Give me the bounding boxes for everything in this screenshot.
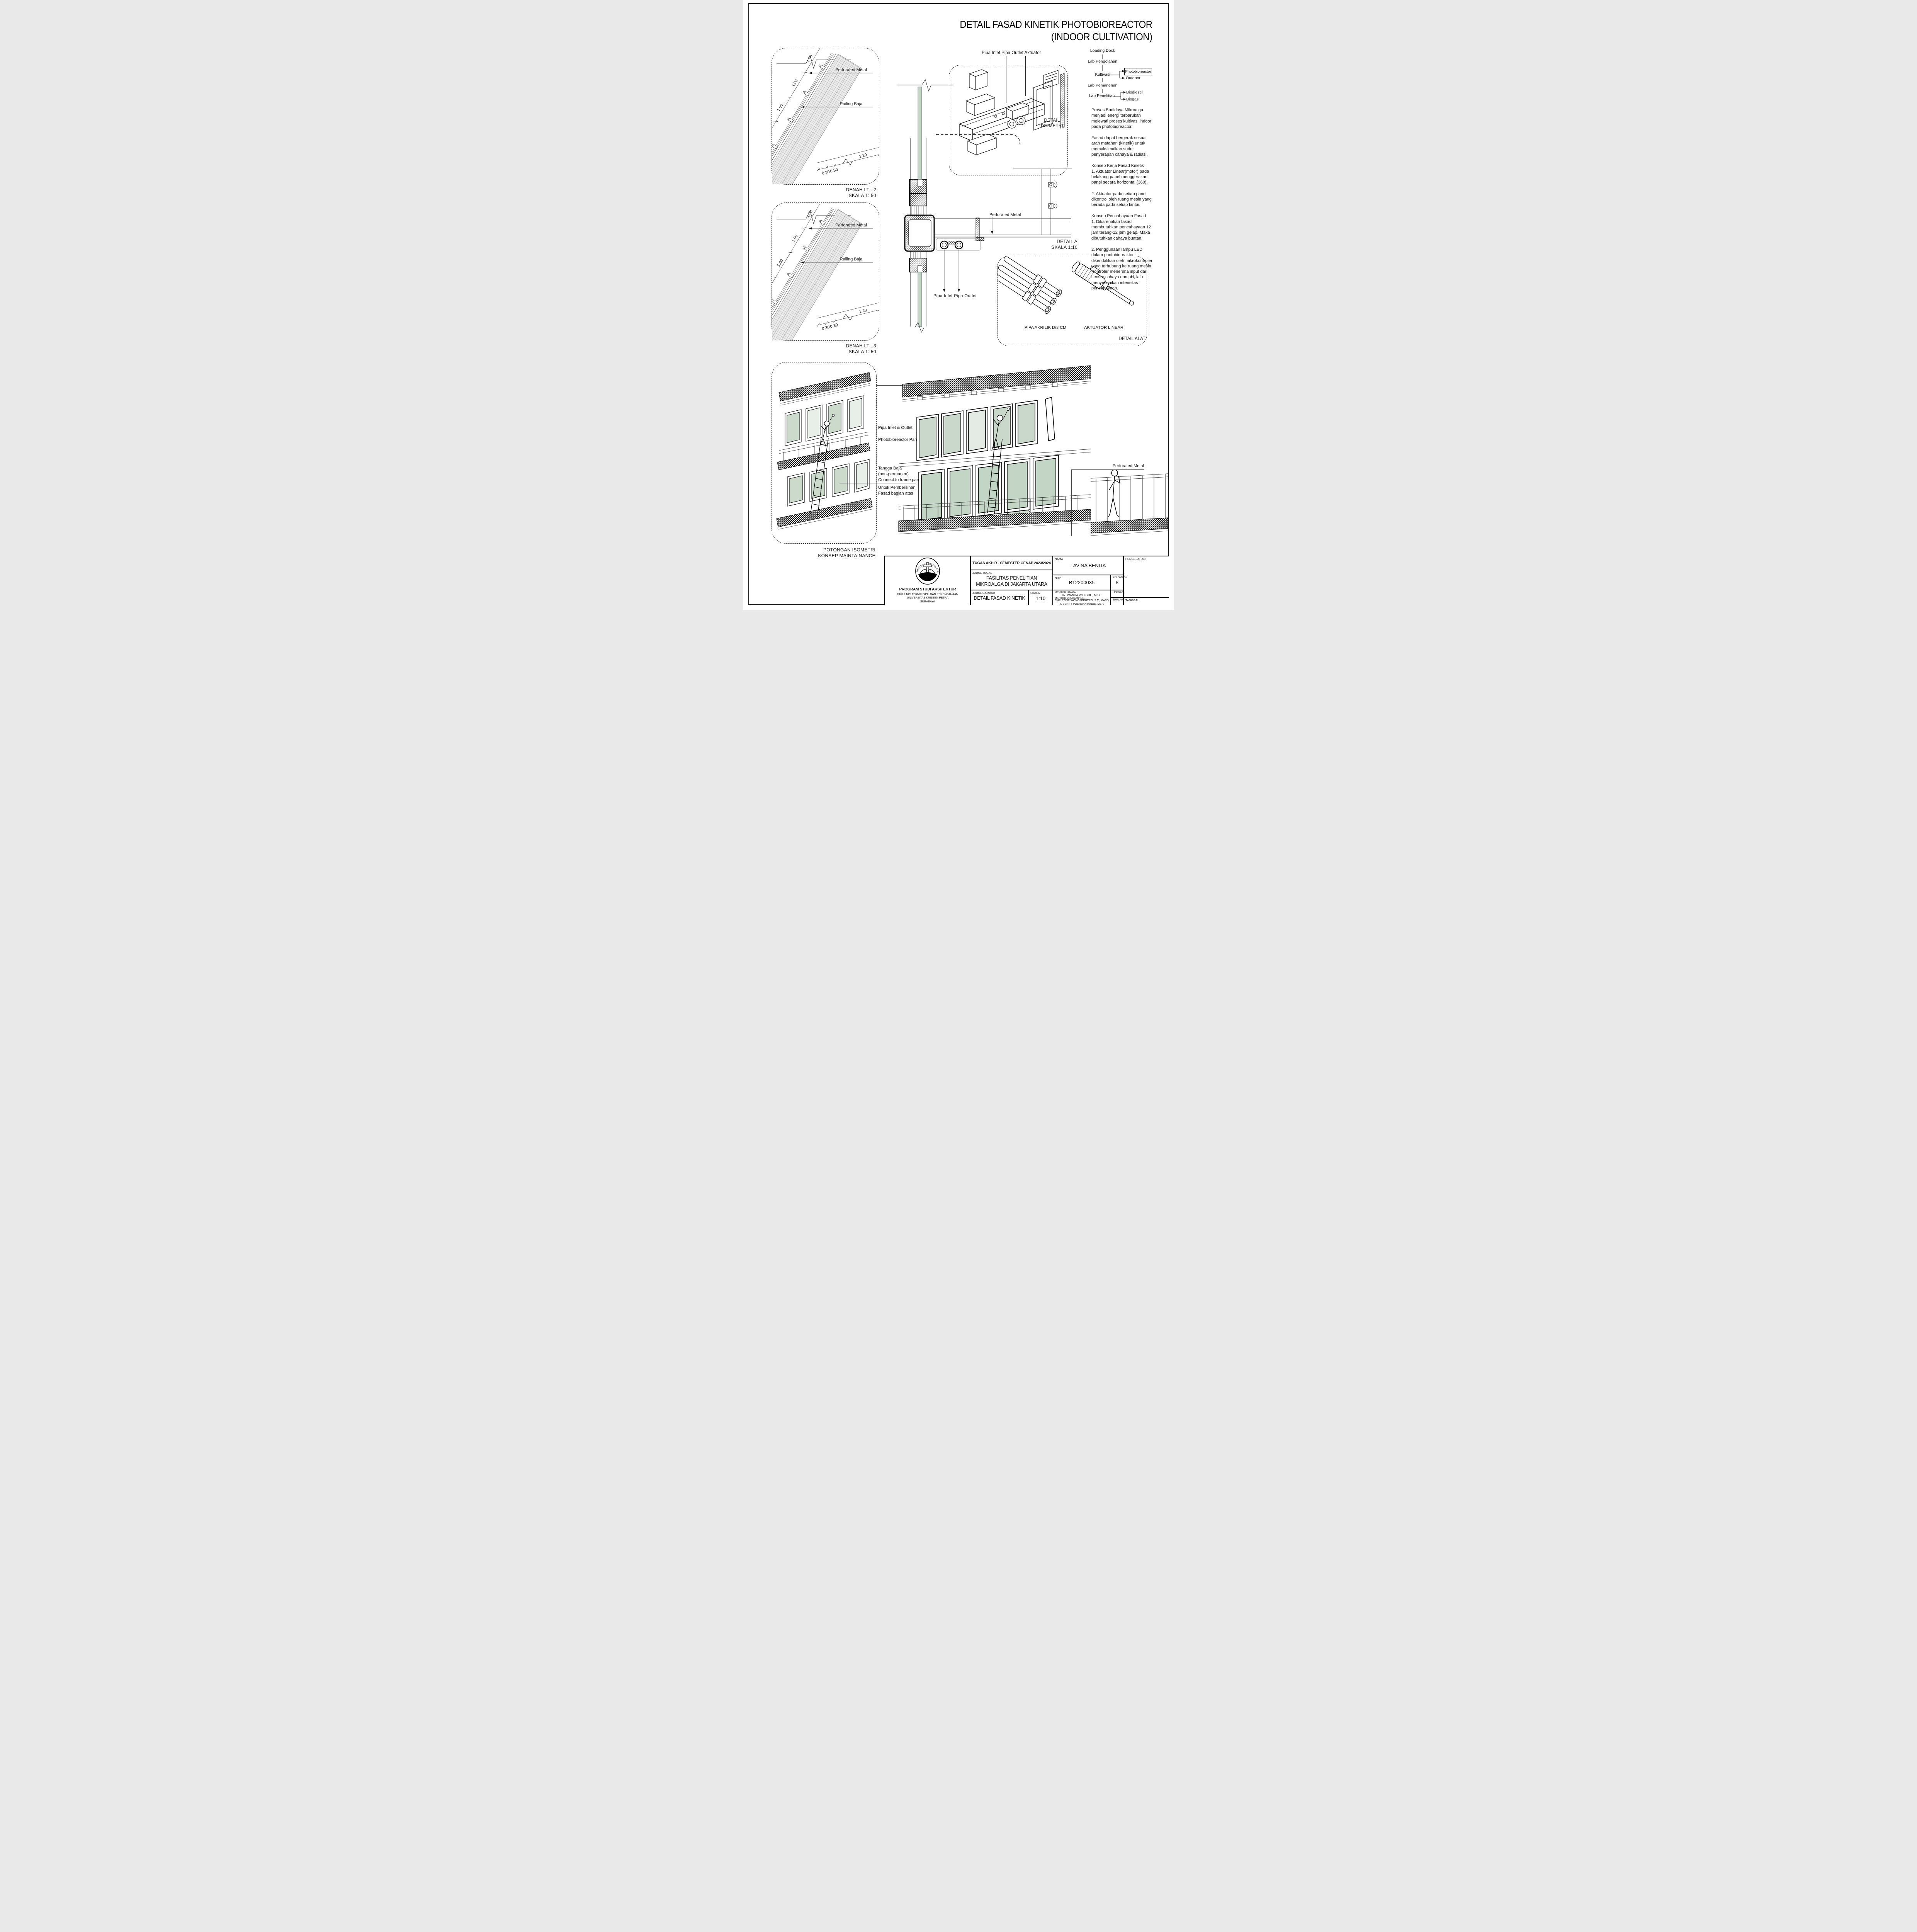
detail-a-pipe-labels: Pipa Inlet Pipa Outlet <box>933 294 977 299</box>
tb-judul-gambar: DETAIL FASAD KINETIK <box>971 595 1028 601</box>
tb-logo-cell: UNIVERSITAS KRISTEN PETRA PROGRAM STUDI … <box>885 556 970 605</box>
para-pencahayaan-1: 1. Dikarenakan fasad membutuhkan pencaha… <box>1091 219 1154 241</box>
denah-lt2-drawing: 1.00 1.00 1.00 1.00 0.30 0.30 1.20 <box>772 48 879 184</box>
para-proses: Proses Budidaya Mikroalga menjadi energi… <box>1091 107 1154 129</box>
tb-nrp-cell: NRP B12200035 <box>1053 575 1110 590</box>
svg-text:1.00: 1.00 <box>791 234 799 243</box>
tb-judul-gambar-cell: JUDUL GAMBAR DETAIL FASAD KINETIK <box>971 590 1028 605</box>
leader-perforated-right <box>1071 469 1144 470</box>
flow-photobioreactor: Photobioreactor <box>1124 68 1152 75</box>
tb-mentor-utama: IR. WANDA WIDIGDO, M.SI. <box>1053 594 1110 597</box>
denah-lt2-caption: DENAH LT . 2SKALA 1: 50 <box>805 187 876 199</box>
concept-text: Proses Budidaya Mikroalga menjadi energi… <box>1091 107 1154 297</box>
svg-text:1.00: 1.00 <box>791 78 799 88</box>
tb-header-cell: TUGAS AKHIR - SEMESTER GENAP 2023/2024 <box>971 556 1052 570</box>
para-aktuator-1: 1. Aktuator Linear(motor) pada belakang … <box>1091 169 1154 185</box>
tb-judul-tugas: FASILITAS PENELITIAN MIKROALGA DI JAKART… <box>971 575 1052 588</box>
svg-text:1.00: 1.00 <box>806 54 814 63</box>
potongan-drawing <box>772 362 876 543</box>
flow-biodiesel: Biodiesel <box>1126 90 1146 95</box>
svg-text:1.00: 1.00 <box>776 259 784 268</box>
svg-text:1.00: 1.00 <box>776 103 784 112</box>
svg-text:1.00: 1.00 <box>806 209 814 219</box>
tb-skala: 1:10 <box>1029 595 1052 601</box>
leader-perforated-right-drop <box>1071 470 1072 536</box>
tb-kelompok-cell: KELOMPOK 8 <box>1111 575 1123 590</box>
svg-text:Railing Baja: Railing Baja <box>840 257 863 262</box>
detail-a-perforated-label: Perforated Metal <box>989 213 1021 218</box>
flow-loading-dock: Loading Dock <box>1089 48 1116 53</box>
svg-text:0.30: 0.30 <box>829 323 838 329</box>
tb-pengesahan-cell: PENGESAHAN <box>1124 556 1169 597</box>
svg-text:Railing Baja: Railing Baja <box>840 102 863 106</box>
tb-mentor-cell: MENTOR UTAMA IR. WANDA WIDIGDO, M.SI. ME… <box>1053 590 1110 605</box>
svg-text:0.30: 0.30 <box>821 169 830 176</box>
tb-judul-tugas-cell: JUDUL TUGAS FASILITAS PENELITIAN MIKROAL… <box>971 570 1052 590</box>
svg-text:1.20: 1.20 <box>858 153 867 159</box>
denah-lt3-panel: 1.00 1.00 1.00 1.00 0.30 0.30 1.20 <box>772 202 879 341</box>
tb-jumlah-cell: JUMLAH <box>1111 598 1123 605</box>
label-perforated-right: Perforated Metal <box>1098 464 1144 469</box>
petra-logo: UNIVERSITAS KRISTEN PETRA <box>914 557 941 585</box>
flow-lab-pengolahan: Lab Pengolahan <box>1087 59 1118 64</box>
svg-text:Perforated Metal: Perforated Metal <box>835 68 867 72</box>
aktuator-linear-label: AKTUATOR LINEAR <box>1082 325 1125 330</box>
pipa-akrilik-label: PIPA AKRILIK D/3 CM <box>1015 325 1076 330</box>
page-title: DETAIL FASAD KINETIK PHOTOBIOREACTOR (IN… <box>960 19 1152 43</box>
svg-text:0.30: 0.30 <box>821 325 830 331</box>
iso-top-labels: Pipa Inlet Pipa Outlet Aktuator <box>982 51 1041 56</box>
para-fasad: Fasad dapat bergerak sesuai arah matahar… <box>1091 135 1154 157</box>
denah-lt2-panel: 1.00 1.00 1.00 1.00 0.30 0.30 1.20 <box>772 48 879 185</box>
detail-alat-caption: DETAIL ALAT <box>1102 337 1145 342</box>
para-konsep-kerja-title: Konsep Kerja Fasad Kinetik <box>1091 163 1154 168</box>
tb-nama-cell: NAMA LAVINA BENITA <box>1053 556 1123 575</box>
drawing-sheet: DETAIL FASAD KINETIK PHOTOBIOREACTOR (IN… <box>743 0 1174 610</box>
flow-kultivasi: Kultivasi <box>1089 72 1116 77</box>
tb-skala-cell: SKALA 1:10 <box>1029 590 1052 605</box>
para-pencahayaan-2: 2. Penggunaan lampu LED dalam photobiore… <box>1091 247 1154 291</box>
potongan-caption: POTONGAN ISOMETRIKONSEP MAINTAINANCE <box>812 547 875 559</box>
flow-biogas: Biogas <box>1126 97 1143 102</box>
para-aktuator-2: 2. Aktuator pada setiap panel dikontrol … <box>1091 191 1154 208</box>
institution-text: PROGRAM STUDI ARSITEKTUR FAKULTAS TEKNIK… <box>885 587 970 603</box>
tb-lembar-cell: LEMBAR <box>1111 590 1123 597</box>
flow-lab-penelitian: Lab Penelitian <box>1087 94 1117 98</box>
page-title-line2: (INDOOR CULTIVATION) <box>960 31 1152 43</box>
detail-a-caption: DETAIL ASKALA 1:10 <box>1029 239 1077 250</box>
svg-text:0.30: 0.30 <box>829 167 838 174</box>
tb-header: TUGAS AKHIR - SEMESTER GENAP 2023/2024 <box>972 561 1051 565</box>
svg-text:1.20: 1.20 <box>858 308 867 315</box>
potongan-panel <box>772 362 877 544</box>
title-block: UNIVERSITAS KRISTEN PETRA PROGRAM STUDI … <box>884 556 1169 605</box>
flow-lab-pemanenan: Lab Pemanenan <box>1087 83 1118 88</box>
denah-lt3-drawing: 1.00 1.00 1.00 1.00 0.30 0.30 1.20 <box>772 203 879 340</box>
tb-nrp: B12200035 <box>1053 580 1110 585</box>
elevation-drawing <box>896 359 1091 545</box>
page-title-line1: DETAIL FASAD KINETIK PHOTOBIOREACTOR <box>960 19 1152 31</box>
para-pencahayaan-title: Konsep Pencahayaan Fasad <box>1091 213 1154 219</box>
svg-text:Perforated Metal: Perforated Metal <box>835 223 867 228</box>
tb-nama: LAVINA BENITA <box>1053 563 1123 568</box>
flow-outdoor: Outdoor <box>1126 76 1144 80</box>
tb-kelompok: 8 <box>1111 580 1123 585</box>
denah-lt3-caption: DENAH LT . 3SKALA 1: 50 <box>805 343 876 355</box>
tb-tanggal-cell: TANGGAL <box>1124 598 1169 605</box>
